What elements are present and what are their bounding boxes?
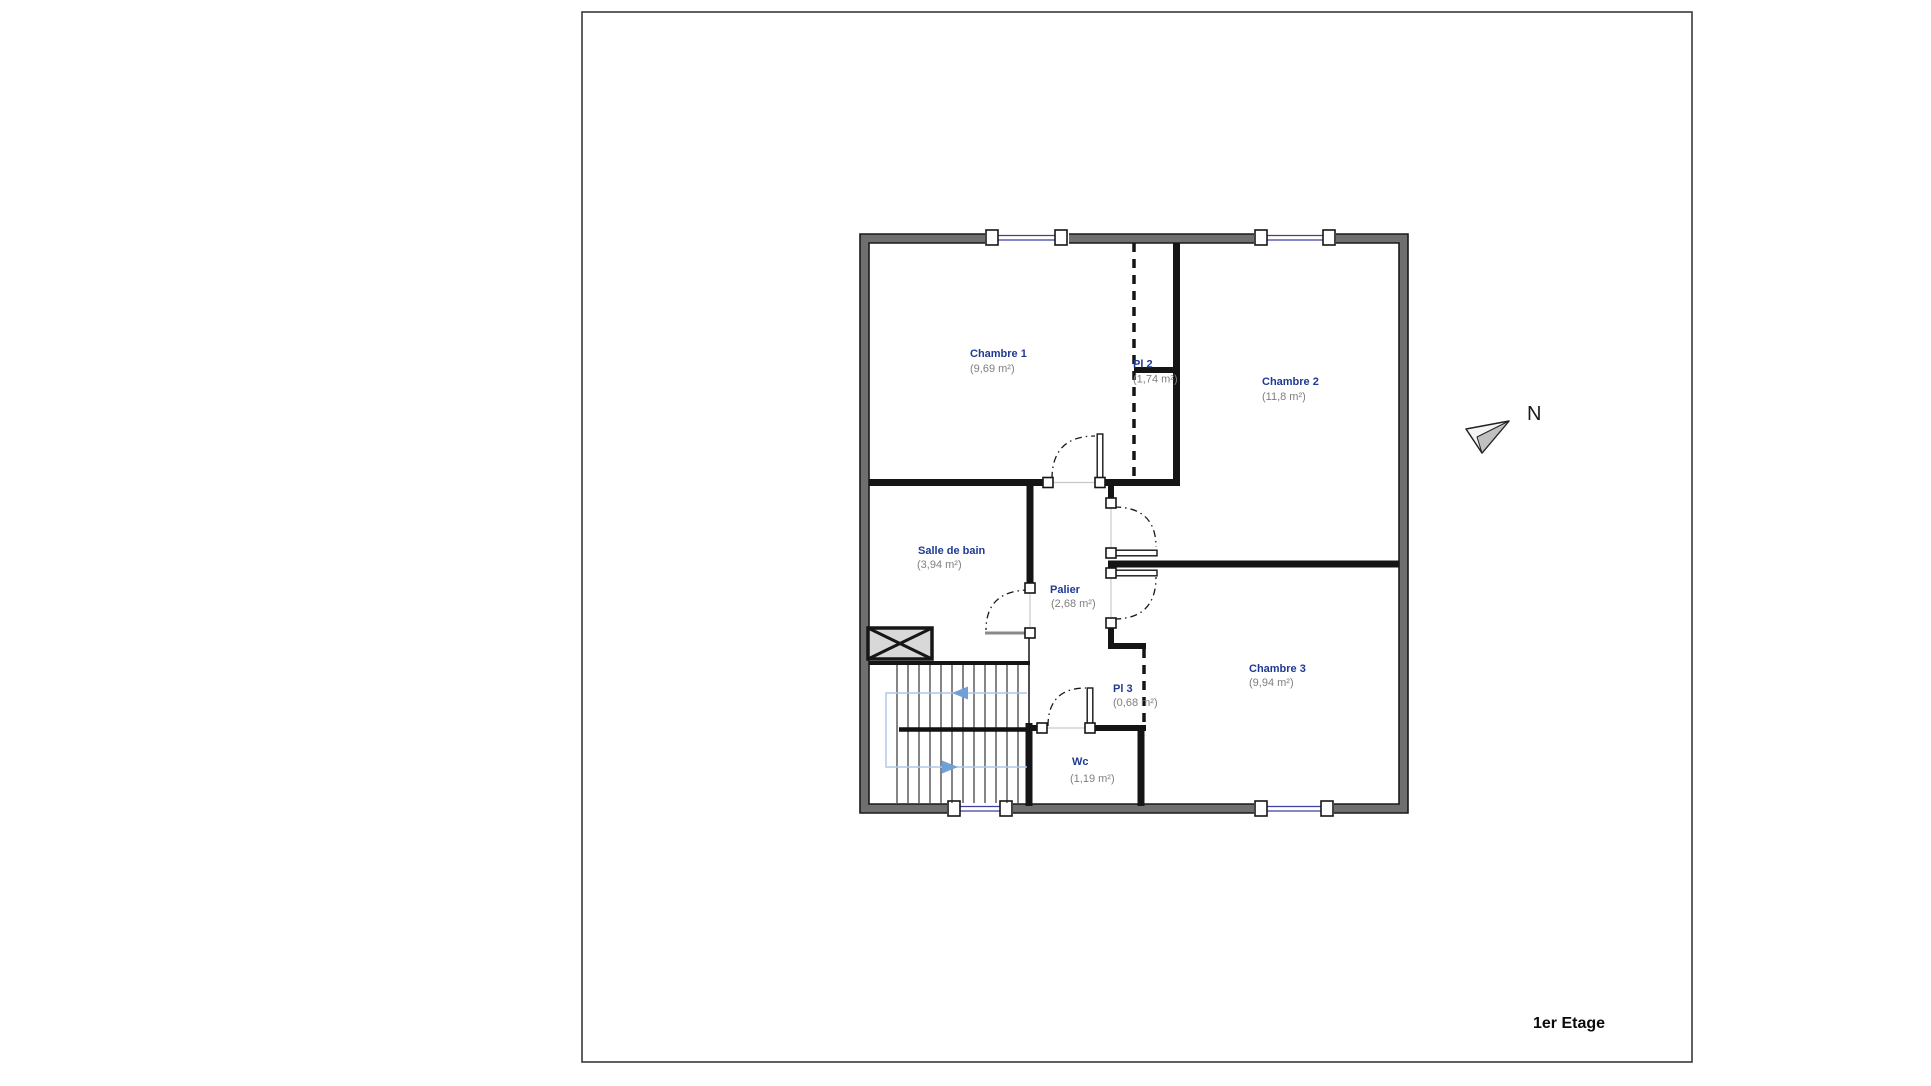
floor-plan-drawing: Chambre 1 (9,69 m²) Pl 2 (1,74 m²) Chamb…: [0, 0, 1931, 1086]
window-top-right: [1254, 230, 1336, 245]
room-label-salle-de-bain: Salle de bain: [918, 545, 986, 557]
room-label-palier: Palier: [1050, 584, 1081, 596]
sheet-border: [582, 12, 1692, 1062]
room-area-chambre-3: (9,94 m²): [1249, 677, 1294, 689]
room-area-palier: (2,68 m²): [1051, 598, 1096, 610]
room-area-pl-3: (0,68 m²): [1113, 697, 1158, 709]
window-bottom-left: [947, 801, 1013, 816]
window-bottom-right: [1254, 801, 1334, 816]
room-label-pl-2: Pl 2: [1133, 359, 1153, 371]
window-top-left: [985, 230, 1069, 245]
room-label-chambre-3: Chambre 3: [1249, 663, 1306, 675]
room-label-wc: Wc: [1072, 756, 1089, 768]
page-canvas: Chambre 1 (9,69 m²) Pl 2 (1,74 m²) Chamb…: [0, 0, 1931, 1086]
room-label-chambre-2: Chambre 2: [1262, 376, 1319, 388]
room-area-salle-de-bain: (3,94 m²): [917, 559, 962, 571]
room-label-pl-3: Pl 3: [1113, 683, 1133, 695]
room-label-chambre-1: Chambre 1: [970, 348, 1027, 360]
north-label: N: [1527, 403, 1541, 425]
room-area-chambre-2: (11,8 m²): [1262, 391, 1306, 403]
room-area-wc: (1,19 m²): [1070, 773, 1115, 785]
room-area-chambre-1: (9,69 m²): [970, 363, 1015, 375]
room-area-pl-2: (1,74 m²): [1133, 374, 1178, 386]
floor-title: 1er Etage: [1533, 1015, 1605, 1032]
